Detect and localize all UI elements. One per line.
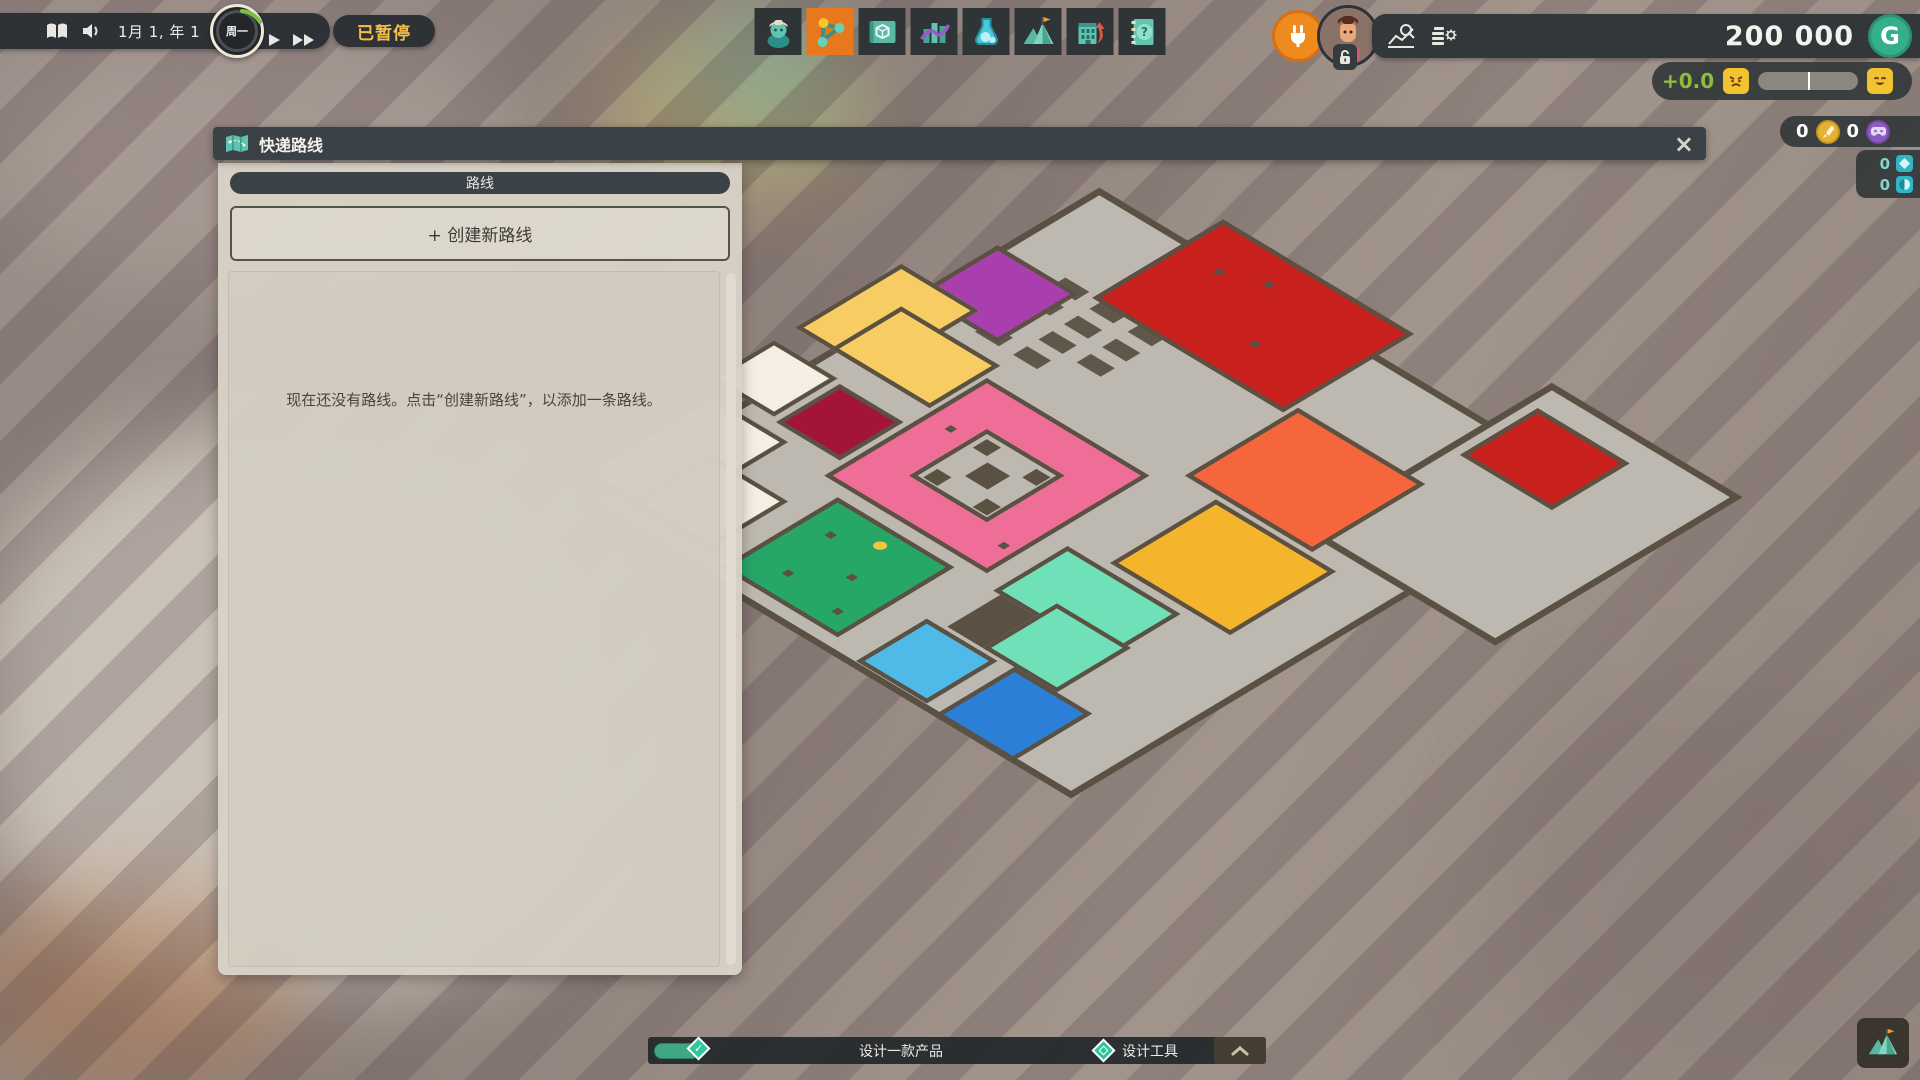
close-button[interactable]: ×	[1674, 132, 1694, 156]
statistics-icon	[917, 15, 951, 49]
chevron-up-icon	[1231, 1046, 1249, 1056]
milestones-icon	[1021, 15, 1055, 49]
product-blueprints-button[interactable]	[859, 8, 906, 55]
svg-text:?: ?	[1141, 25, 1148, 39]
building-upgrade-icon	[1073, 15, 1107, 49]
panel-title: 快递路线	[259, 132, 323, 156]
money-bar: 200 000 G	[1372, 14, 1920, 58]
task2-label: 设计工具	[1122, 1041, 1178, 1061]
milestones-icon	[1865, 1027, 1901, 1059]
diamond-count: 0	[1880, 155, 1890, 173]
task-bar: ✓ 设计一款产品 设计工具	[648, 1037, 1266, 1064]
orb-count: 0	[1880, 176, 1890, 194]
task2-diamond-icon	[1091, 1038, 1115, 1062]
menu-icon[interactable]	[14, 23, 32, 39]
tab-routes-label: 路线	[466, 173, 494, 193]
staff-button[interactable]	[755, 8, 802, 55]
routes-list: 现在还没有路线。点击“创建新路线”，以添加一条路线。	[228, 271, 720, 967]
statistics-button[interactable]	[911, 8, 958, 55]
create-route-button[interactable]: + 创建新路线	[230, 206, 730, 261]
empty-state-text: 现在还没有路线。点击“创建新路线”，以添加一条路线。	[257, 387, 691, 413]
sound-icon[interactable]	[82, 23, 102, 39]
unlock-icon	[1338, 49, 1352, 65]
point-counters: 0 0	[1856, 150, 1920, 198]
paused-badge: 已暂停	[333, 15, 435, 47]
main-toolbar: ?	[755, 8, 1166, 55]
tab-routes[interactable]: 路线	[230, 172, 730, 194]
fast-forward-button[interactable]	[292, 33, 316, 47]
rocket-count: 0	[1796, 121, 1809, 142]
mood-slider[interactable]	[1758, 72, 1858, 90]
research-icon	[969, 15, 1003, 49]
task1-label: 设计一款产品	[707, 1041, 1095, 1061]
top-left-control-bar: 1月 1, 年 1	[0, 13, 330, 49]
research-button[interactable]	[963, 8, 1010, 55]
handbook-button[interactable]: ?	[1119, 8, 1166, 55]
product-blueprints-icon	[865, 15, 899, 49]
clock-button[interactable]: 周一	[210, 4, 264, 58]
routes-map-icon	[225, 134, 249, 153]
currency-letter: G	[1880, 22, 1900, 50]
weekday-label: 周一	[226, 23, 248, 39]
orb-counter-row: 0	[1862, 175, 1914, 194]
money-amount: 200 000	[1725, 21, 1854, 52]
collapse-taskbar-button[interactable]	[1214, 1037, 1266, 1064]
diamond-counter-row: 0	[1862, 154, 1914, 173]
create-route-label: + 创建新路线	[428, 221, 533, 246]
finance-chart-icon[interactable]	[1386, 22, 1416, 50]
happy-emoji-icon	[1867, 68, 1893, 94]
building-upgrade-button[interactable]	[1067, 8, 1114, 55]
controller-count: 0	[1847, 121, 1860, 142]
angry-emoji-icon	[1723, 68, 1749, 94]
panel-header: 快递路线 ×	[213, 127, 1706, 160]
lock-badge[interactable]	[1333, 44, 1357, 70]
play-button[interactable]	[268, 33, 281, 47]
delivery-routes-button[interactable]	[807, 8, 854, 55]
handbook-icon: ?	[1125, 15, 1159, 49]
budget-icon[interactable]	[1430, 22, 1460, 50]
delivery-routes-icon	[813, 15, 847, 49]
currency-coin: G	[1868, 14, 1912, 58]
milestones-button[interactable]	[1015, 8, 1062, 55]
game-date: 1月 1, 年 1	[118, 21, 200, 42]
plug-icon	[1285, 23, 1311, 49]
mood-bar: +0.0	[1652, 62, 1912, 100]
routes-card: 路线 + 创建新路线 现在还没有路线。点击“创建新路线”，以添加一条路线。	[218, 163, 742, 975]
orb-point-icon	[1895, 175, 1914, 194]
staff-icon	[761, 15, 795, 49]
controller-coin-icon	[1866, 120, 1890, 144]
milestones-quick-button[interactable]	[1857, 1018, 1909, 1068]
paused-label: 已暂停	[357, 19, 411, 44]
diamond-point-icon	[1895, 154, 1914, 173]
research-counters: 0 0	[1780, 116, 1920, 147]
mood-slider-thumb	[1808, 72, 1810, 90]
mood-value: +0.0	[1662, 69, 1714, 93]
check-glyph: ✓	[694, 1043, 703, 1054]
routes-scrollbar[interactable]	[726, 273, 736, 965]
rocket-coin-icon	[1816, 120, 1840, 144]
handbook-icon[interactable]	[46, 23, 68, 40]
